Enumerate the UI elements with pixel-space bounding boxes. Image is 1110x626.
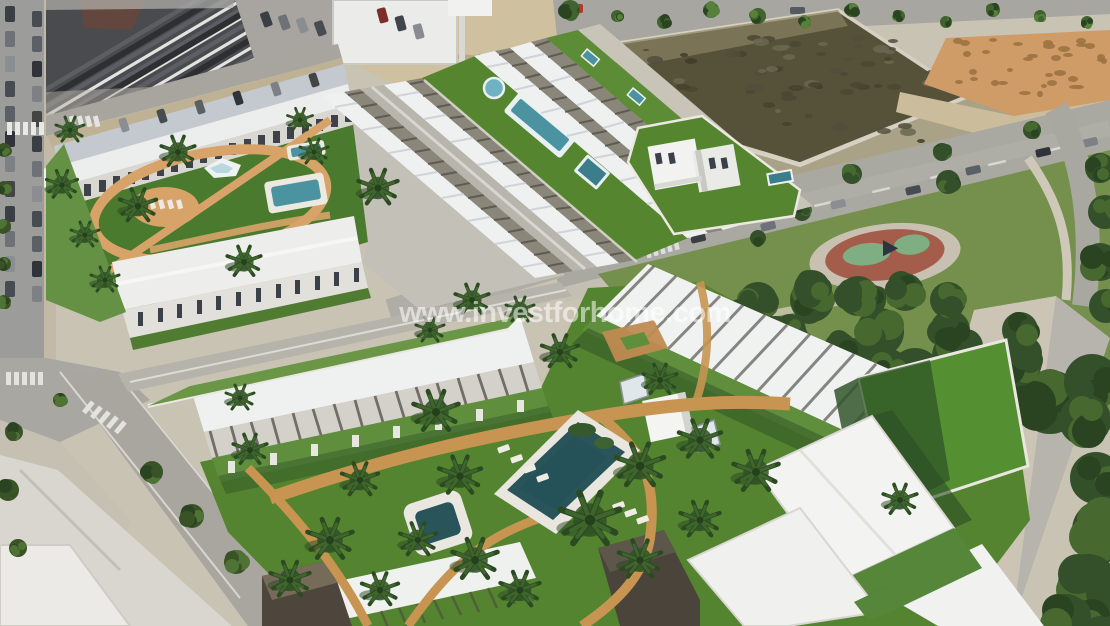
svg-text:www.investforhome.com: www.investforhome.com [398, 297, 731, 329]
